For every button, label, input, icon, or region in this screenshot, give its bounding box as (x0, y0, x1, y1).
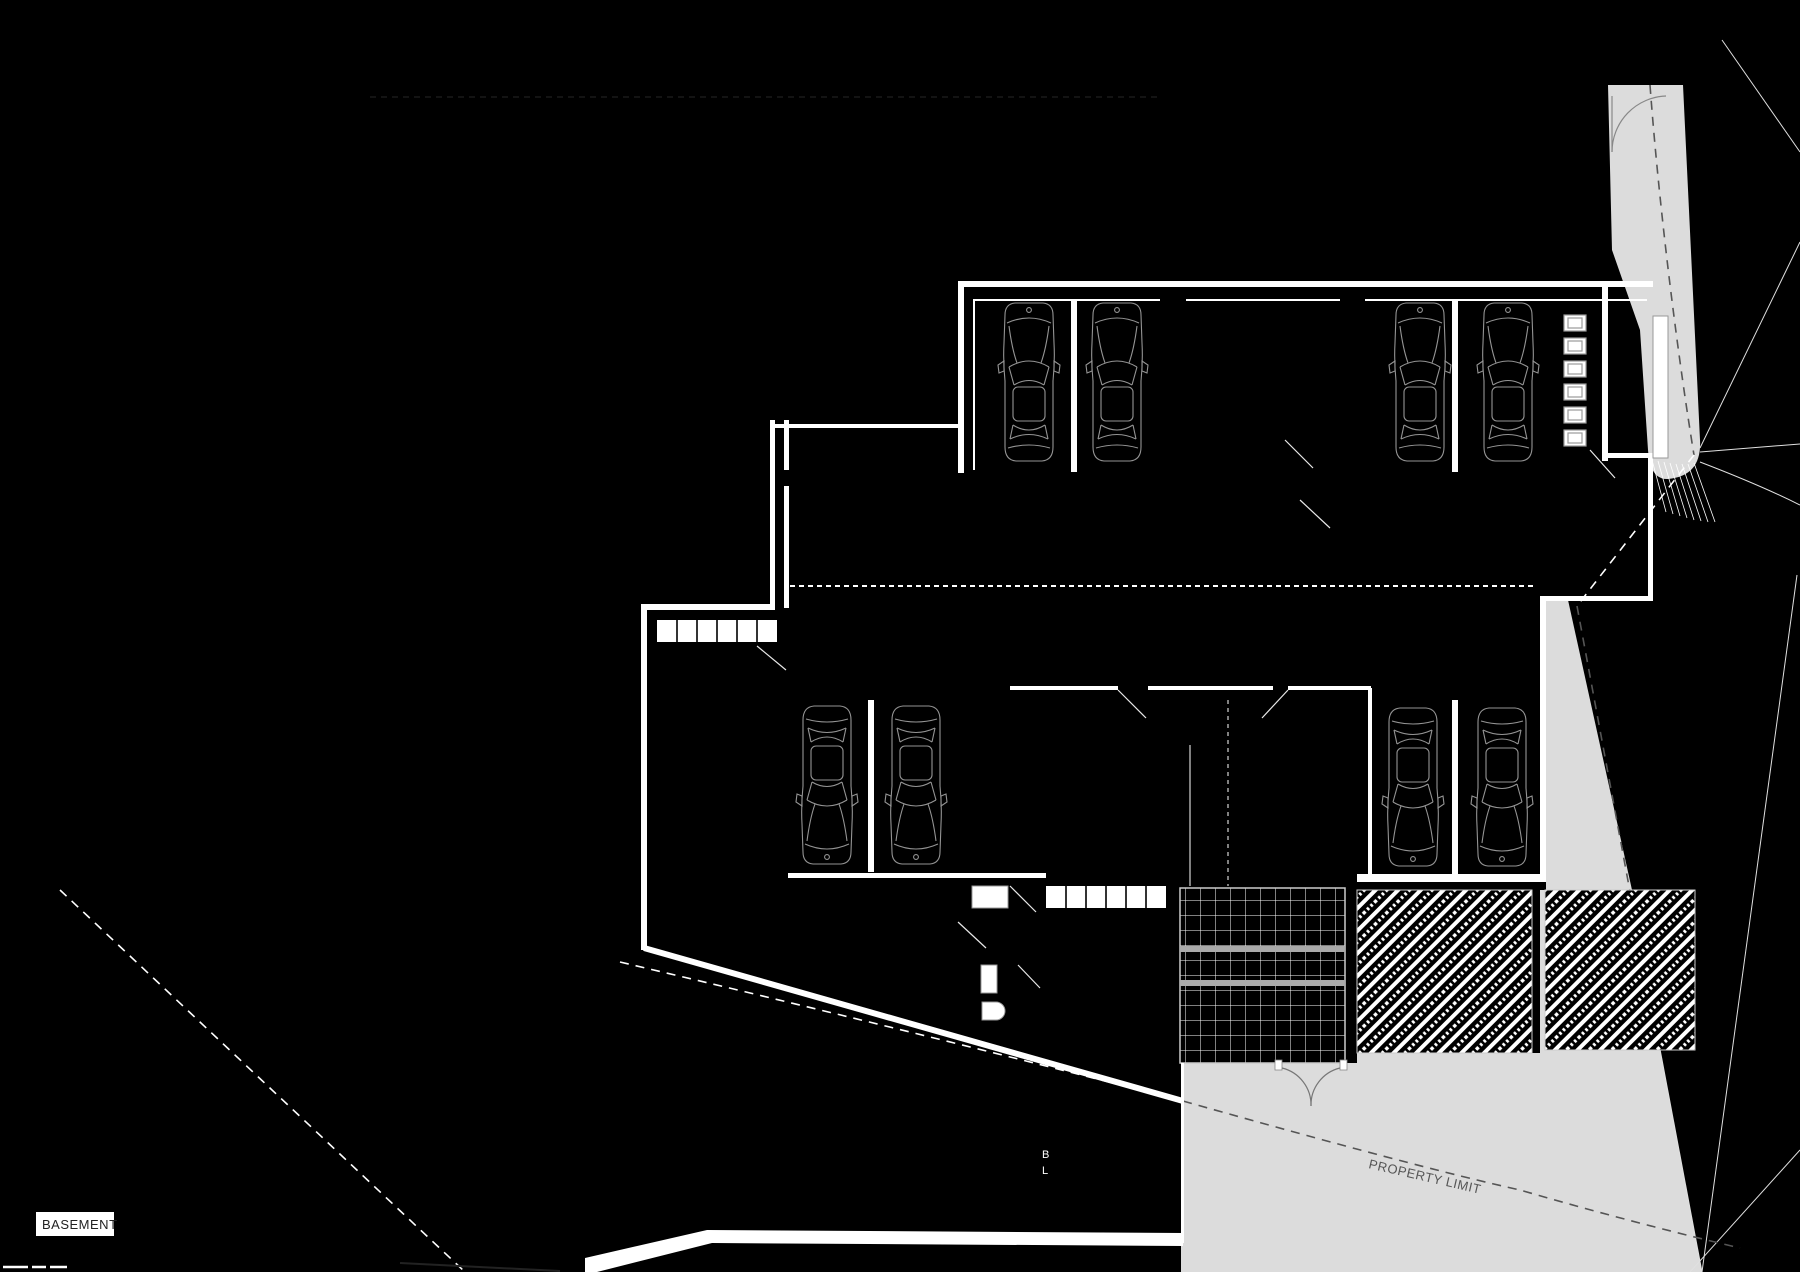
parked-car (1471, 708, 1533, 866)
section-marker-l: L (1042, 1165, 1048, 1177)
bay-divider-wall (1452, 300, 1458, 472)
access-road-band (585, 1230, 1183, 1272)
door-swing (1010, 886, 1036, 912)
door-swing (1285, 440, 1313, 468)
bay-divider-wall (868, 700, 874, 872)
lower-left-parking (788, 700, 1046, 878)
basement-label: BASEMENT (42, 1217, 118, 1232)
hatched-area-1 (1357, 890, 1532, 1053)
ramp-break-band (1180, 980, 1345, 986)
bay-divider-wall (1452, 700, 1458, 876)
door-leaf (972, 886, 1008, 908)
lower-right-parking (1010, 686, 1546, 882)
floor-plan-canvas: BASEMENT PROPERTY LIMIT B L (0, 0, 1800, 1272)
terrain-right-wedge (1546, 600, 1632, 890)
storage-lockers (1564, 315, 1586, 446)
door-swing (757, 646, 786, 670)
garage-gate-panel (1653, 316, 1668, 458)
door-swing (958, 922, 986, 948)
ramp-break-band (1180, 946, 1345, 952)
stair-flight-upper (657, 620, 777, 642)
tiled-ramp-area (1180, 888, 1345, 1063)
parked-car (796, 706, 858, 864)
diagonal-boundary-wall (644, 948, 1183, 1101)
door-swing (1118, 690, 1146, 718)
parked-car (885, 706, 947, 864)
faint-road-continuation (400, 1263, 560, 1271)
door-swing (1262, 690, 1288, 718)
door-swing (1300, 500, 1330, 528)
bay-divider-wall (1071, 300, 1077, 472)
parked-car (1382, 708, 1444, 866)
yard-edge-line (1181, 1063, 1184, 1243)
door-leaf (981, 965, 997, 993)
wc-fixture (982, 1002, 1005, 1020)
terrain-areas (1181, 85, 1702, 1272)
parked-car (998, 303, 1060, 461)
parked-car (1086, 303, 1148, 461)
parked-car (1389, 303, 1451, 461)
parked-car (1477, 303, 1539, 461)
basement-plan-drawing: BASEMENT PROPERTY LIMIT B L (0, 0, 1800, 1272)
stair-flight-lower (1046, 886, 1166, 908)
door-swing (1018, 965, 1040, 988)
hatched-area-2 (1545, 890, 1695, 1050)
section-marker-b: B (1042, 1149, 1049, 1161)
